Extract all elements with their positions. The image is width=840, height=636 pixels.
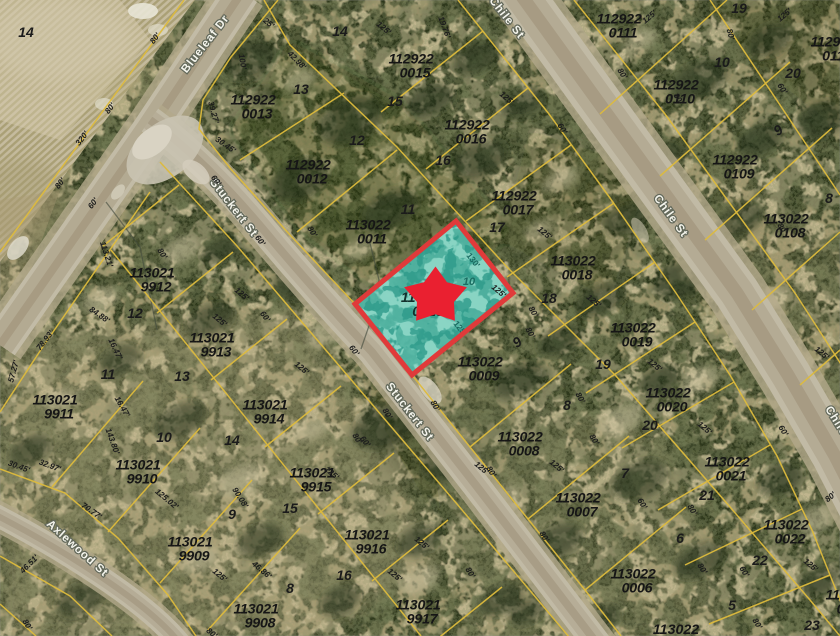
svg-text:0004: 0004: [837, 602, 840, 618]
svg-text:0112: 0112: [822, 49, 840, 65]
svg-text:23: 23: [803, 617, 820, 633]
svg-text:12: 12: [349, 132, 365, 148]
svg-text:8: 8: [286, 580, 294, 596]
svg-text:9913: 9913: [201, 345, 232, 361]
svg-text:15: 15: [282, 500, 298, 516]
svg-text:19: 19: [595, 356, 611, 372]
svg-text:0017: 0017: [503, 203, 535, 219]
svg-text:0109: 0109: [724, 167, 755, 183]
svg-text:15: 15: [387, 93, 403, 109]
svg-text:9910: 9910: [127, 472, 158, 488]
svg-text:0021: 0021: [716, 469, 747, 485]
svg-text:9911: 9911: [44, 407, 74, 423]
svg-text:16: 16: [336, 567, 352, 583]
svg-text:0018: 0018: [562, 268, 593, 284]
svg-text:8: 8: [563, 397, 571, 413]
svg-text:20: 20: [641, 417, 658, 433]
svg-text:0019: 0019: [622, 335, 653, 351]
svg-text:16: 16: [435, 152, 451, 168]
svg-text:11: 11: [101, 366, 116, 382]
svg-text:11: 11: [401, 201, 416, 217]
svg-text:0007: 0007: [567, 505, 599, 521]
svg-text:9917: 9917: [407, 612, 439, 628]
svg-text:14: 14: [332, 23, 348, 39]
svg-text:9909: 9909: [179, 549, 210, 565]
svg-text:14: 14: [224, 432, 240, 448]
svg-text:9915: 9915: [301, 480, 333, 496]
svg-text:9914: 9914: [254, 412, 285, 428]
svg-text:0011: 0011: [357, 232, 387, 248]
svg-text:21: 21: [698, 487, 715, 503]
svg-text:5: 5: [728, 597, 736, 613]
svg-text:0020: 0020: [657, 400, 688, 416]
svg-text:9916: 9916: [356, 542, 387, 558]
svg-text:0022: 0022: [775, 532, 806, 548]
svg-text:113022: 113022: [653, 622, 699, 636]
svg-text:20: 20: [784, 65, 801, 81]
svg-text:6: 6: [676, 530, 684, 546]
svg-text:0015: 0015: [400, 66, 432, 82]
svg-text:10: 10: [714, 54, 730, 70]
svg-text:14: 14: [18, 24, 34, 40]
svg-text:8: 8: [825, 190, 833, 206]
svg-text:0111: 0111: [609, 26, 638, 42]
svg-text:19: 19: [731, 0, 747, 16]
svg-text:0006: 0006: [622, 581, 653, 597]
svg-text:10: 10: [156, 429, 172, 445]
svg-text:9: 9: [228, 506, 236, 522]
svg-text:13: 13: [174, 368, 190, 384]
svg-text:22: 22: [751, 552, 768, 568]
svg-text:0012: 0012: [297, 172, 328, 188]
svg-text:7: 7: [621, 465, 630, 481]
svg-text:0008: 0008: [509, 444, 540, 460]
svg-text:12: 12: [127, 305, 143, 321]
svg-text:10: 10: [463, 276, 476, 288]
svg-text:0016: 0016: [456, 132, 487, 148]
svg-text:0009: 0009: [469, 369, 500, 385]
svg-text:0013: 0013: [242, 107, 273, 123]
svg-text:13: 13: [293, 81, 309, 97]
svg-text:9912: 9912: [141, 280, 172, 296]
svg-text:9908: 9908: [245, 616, 276, 632]
svg-text:17: 17: [489, 219, 506, 235]
svg-text:18: 18: [541, 290, 557, 306]
